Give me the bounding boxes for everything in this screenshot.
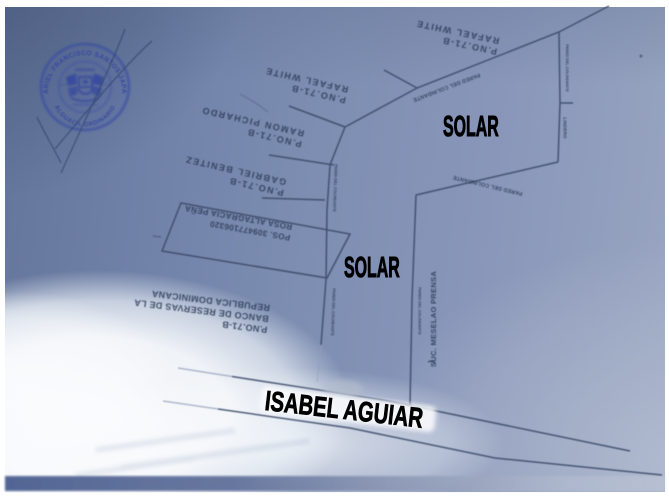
svg-text:PARED DEL COLINDANTE: PARED DEL COLINDANTE (330, 288, 336, 336)
svg-text:PARED DEL COLINDANTE: PARED DEL COLINDANTE (418, 287, 422, 335)
svg-text:LINDERO: LINDERO (563, 117, 568, 139)
svg-text:PARED DEL COLINDANTE: PARED DEL COLINDANTE (565, 44, 569, 92)
svg-text:SUC. MESELAO PRENSA: SUC. MESELAO PRENSA (429, 271, 438, 367)
svg-text:PARED DEL COLINDANTE: PARED DEL COLINDANTE (332, 164, 338, 212)
svg-text:PARED DEL COLINDANTE: PARED DEL COLINDANTE (452, 174, 523, 197)
